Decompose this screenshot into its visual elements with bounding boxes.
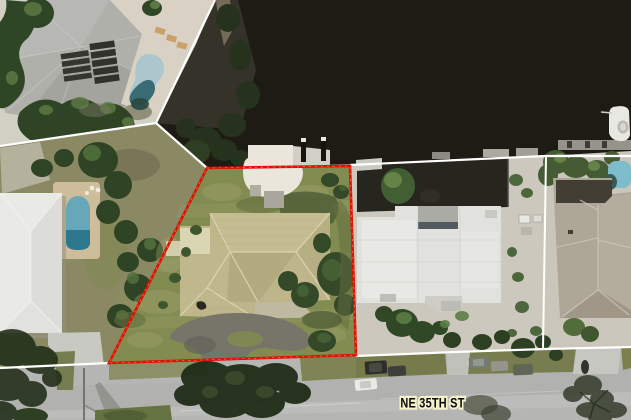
- svg-text:NE 35TH ST: NE 35TH ST: [400, 395, 464, 411]
